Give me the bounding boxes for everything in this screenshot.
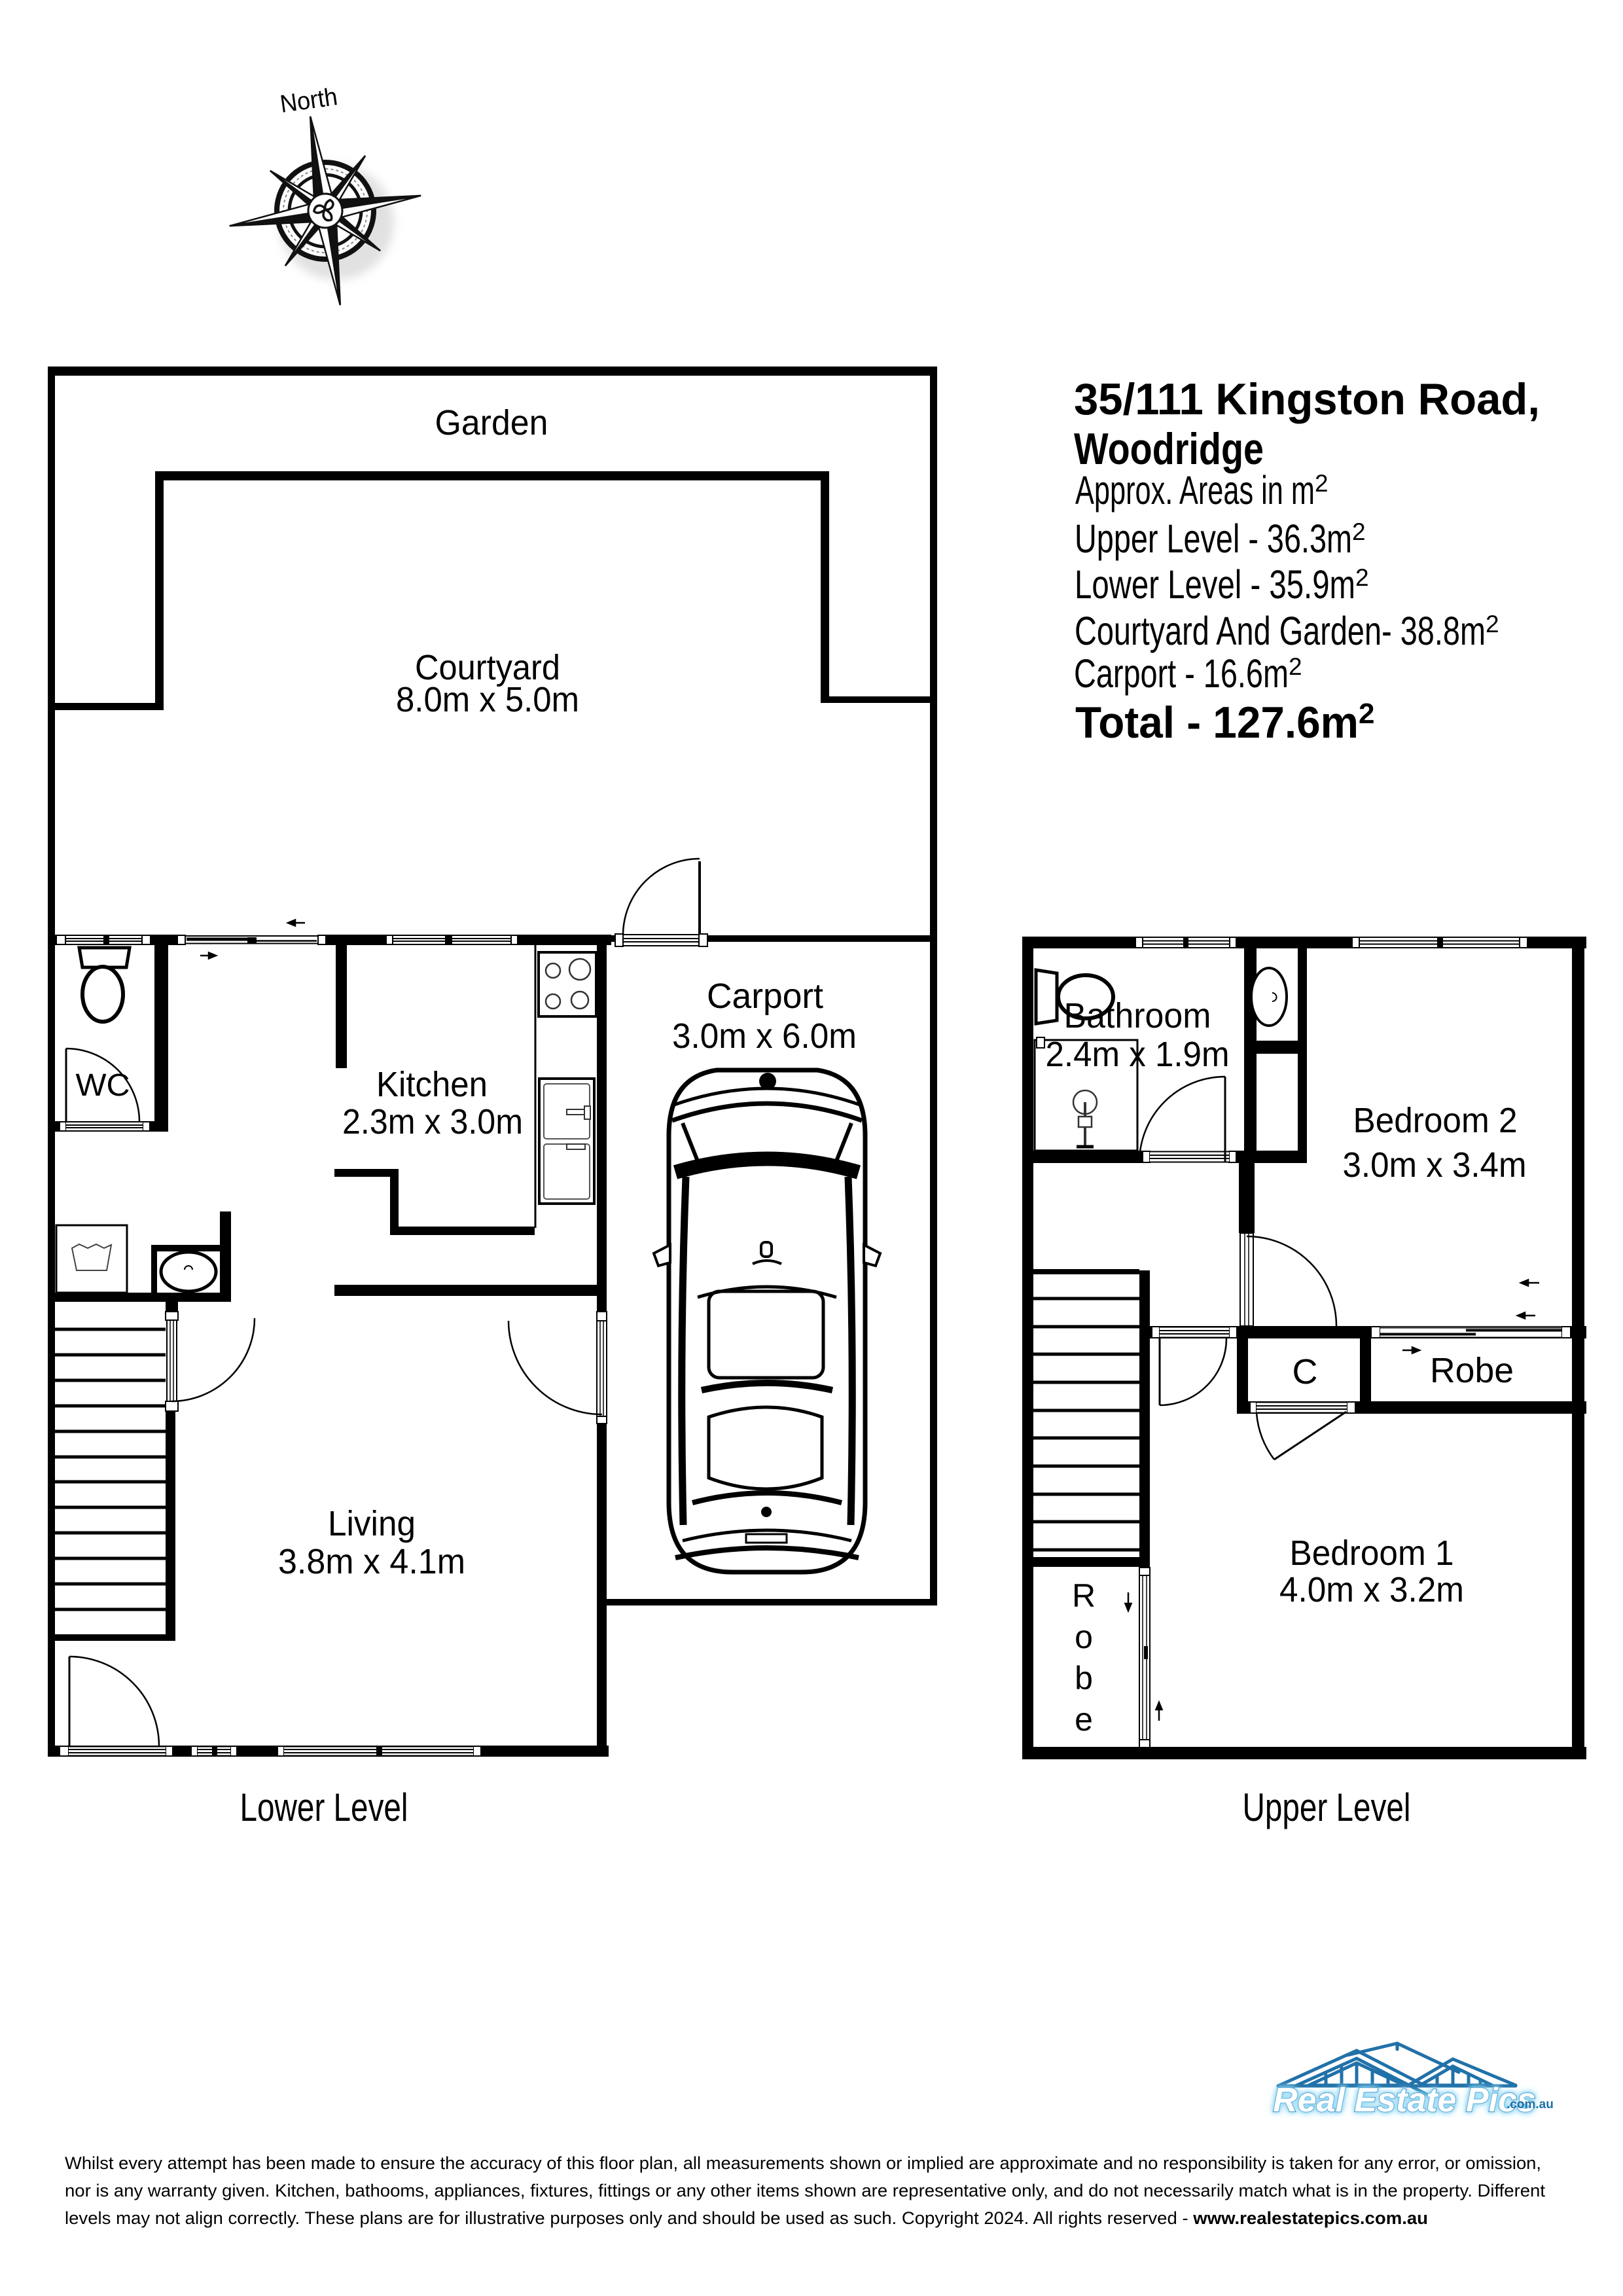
svg-text:Bathroom: Bathroom [1064,996,1211,1035]
svg-text:3.0m x 3.4m: 3.0m x 3.4m [1343,1145,1527,1185]
svg-text:Upper Level - 36.3m2: Upper Level - 36.3m2 [1075,516,1366,561]
svg-text:Robe: Robe [1430,1351,1514,1390]
svg-text:Whilst every attempt has been: Whilst every attempt has been made to en… [65,2153,1541,2173]
svg-text:nor is any warranty given. Ki: nor is any warranty given. Kitchen, bath… [65,2181,1545,2200]
svg-text:Approx. Areas in m2: Approx. Areas in m2 [1075,468,1329,512]
svg-text:Garden: Garden [435,403,548,442]
svg-text:o: o [1075,1619,1093,1655]
svg-text:Upper Level: Upper Level [1243,1785,1411,1829]
svg-text:Living: Living [328,1504,416,1543]
svg-text:Total - 127.6m2: Total - 127.6m2 [1075,698,1374,747]
svg-text:R: R [1072,1577,1096,1614]
svg-text:Carport: Carport [707,977,823,1016]
svg-text:2.4m x 1.9m: 2.4m x 1.9m [1046,1035,1230,1074]
svg-text:e: e [1075,1701,1093,1738]
svg-text:4.0m x 3.2m: 4.0m x 3.2m [1279,1570,1464,1609]
svg-text:b: b [1075,1660,1093,1696]
svg-text:8.0m x 5.0m: 8.0m x 5.0m [396,680,579,719]
svg-text:Bedroom 1: Bedroom 1 [1290,1534,1454,1573]
svg-text:levels may not align correctly: levels may not align correctly. These pl… [65,2208,1428,2228]
svg-text:2.3m x 3.0m: 2.3m x 3.0m [342,1102,523,1141]
svg-text:35/111 Kingston Road,: 35/111 Kingston Road, [1074,374,1540,424]
svg-text:3.8m x 4.1m: 3.8m x 4.1m [278,1542,465,1581]
svg-text:.com.au: .com.au [1507,2098,1554,2111]
svg-text:Real Estate Pics: Real Estate Pics [1273,2081,1536,2119]
svg-text:C: C [1293,1352,1318,1391]
svg-text:3.0m x 6.0m: 3.0m x 6.0m [672,1016,857,1056]
svg-text:Courtyard And Garden- 38.8m2: Courtyard And Garden- 38.8m2 [1075,609,1499,653]
svg-text:Bedroom 2: Bedroom 2 [1353,1101,1518,1140]
svg-text:WC: WC [76,1068,130,1103]
svg-text:Carport - 16.6m2: Carport - 16.6m2 [1074,651,1302,696]
svg-text:Woodridge: Woodridge [1074,424,1264,474]
svg-text:Lower Level - 35.9m2: Lower Level - 35.9m2 [1075,562,1369,607]
svg-text:Lower Level: Lower Level [240,1785,408,1829]
svg-text:Kitchen: Kitchen [376,1065,488,1104]
